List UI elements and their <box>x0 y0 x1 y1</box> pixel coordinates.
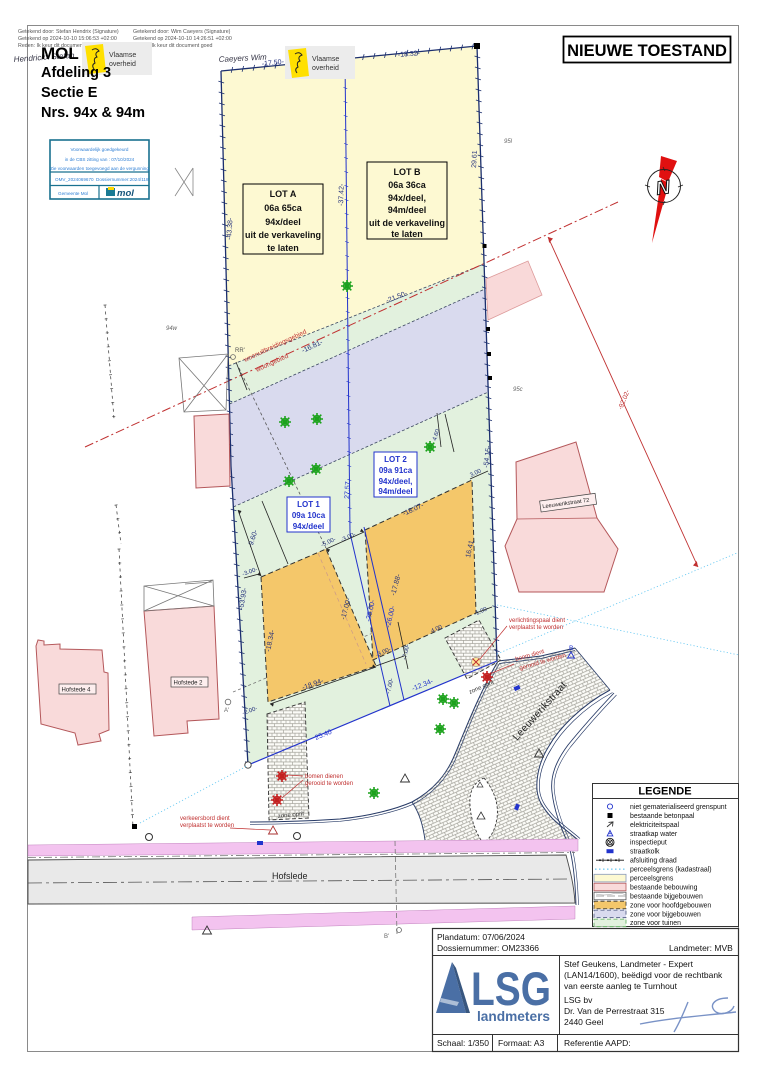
svg-text:mol: mol <box>117 188 134 199</box>
svg-text:LOT A: LOT A <box>270 189 297 199</box>
svg-text:perceelsgrens (kadastraal): perceelsgrens (kadastraal) <box>630 867 712 874</box>
svg-text:A': A' <box>224 708 229 714</box>
svg-text:te laten: te laten <box>267 243 299 253</box>
svg-text:Getekend op 2024-10-10 15:06:5: Getekend op 2024-10-10 15:06:53 +02:00 <box>18 36 117 42</box>
svg-text:MOL: MOL <box>41 44 79 63</box>
svg-text:Gemeente Mol: Gemeente Mol <box>58 191 88 196</box>
svg-text:bestaande bijgebouwen: bestaande bijgebouwen <box>630 893 703 900</box>
svg-text:uit de verkaveling: uit de verkaveling <box>245 230 321 240</box>
svg-text:Schaal: 1/350: Schaal: 1/350 <box>437 1038 489 1048</box>
svg-text:LSG: LSG <box>471 962 551 1015</box>
svg-text:09a 91ca: 09a 91ca <box>379 466 413 475</box>
svg-text:94m/deel: 94m/deel <box>378 487 412 496</box>
svg-text:Sectie E: Sectie E <box>41 85 98 101</box>
svg-text:uit de verkaveling: uit de verkaveling <box>369 218 445 228</box>
svg-text:LSG bv: LSG bv <box>564 995 593 1005</box>
svg-text:06a 65ca: 06a 65ca <box>264 203 303 213</box>
svg-text:LEGENDE: LEGENDE <box>638 786 691 798</box>
svg-text:Landmeter: MVB: Landmeter: MVB <box>669 943 733 953</box>
svg-text:Plandatum: 07/06/2024: Plandatum: 07/06/2024 <box>437 932 525 942</box>
svg-text:95l: 95l <box>504 139 513 145</box>
svg-text:Dossiernummer:2024/118: Dossiernummer:2024/118 <box>96 177 149 182</box>
svg-text:Vlaamse: Vlaamse <box>312 56 339 63</box>
svg-text:te laten: te laten <box>391 229 423 239</box>
svg-text:afsluiting draad: afsluiting draad <box>630 858 677 865</box>
svg-text:zone voor tuinen: zone voor tuinen <box>630 920 681 927</box>
svg-text:94w: 94w <box>166 326 178 332</box>
svg-text:LOT B: LOT B <box>394 167 421 177</box>
svg-text:verlichtingspaal dient: verlichtingspaal dient <box>509 618 565 624</box>
svg-text:B: B <box>569 645 573 652</box>
svg-text:inspectieput: inspectieput <box>630 840 667 847</box>
svg-text:overheid: overheid <box>312 65 339 72</box>
svg-text:OMV_2024069670: OMV_2024069670 <box>55 177 94 182</box>
svg-text:niet gematerialiseerd grenspun: niet gematerialiseerd grenspunt <box>630 804 727 811</box>
svg-text:elektriciteitspaal: elektriciteitspaal <box>630 822 679 829</box>
svg-text:94x/deel: 94x/deel <box>265 217 301 227</box>
svg-text:Nrs. 94x & 94m: Nrs. 94x & 94m <box>41 105 145 121</box>
svg-text:straatkolk: straatkolk <box>630 849 660 856</box>
svg-text:straatkap water: straatkap water <box>630 831 678 838</box>
svg-text:perceelsgrens: perceelsgrens <box>630 876 674 883</box>
svg-text:van eerste aanleg te Turnhout: van eerste aanleg te Turnhout <box>564 981 678 991</box>
svg-text:Dr. Van de Perrestraat 315: Dr. Van de Perrestraat 315 <box>564 1006 665 1016</box>
svg-text:Dossiernummer: OM23366: Dossiernummer: OM23366 <box>437 943 539 953</box>
svg-text:Getekend op 2024-10-10 14:26:5: Getekend op 2024-10-10 14:26:51 +02:00 <box>133 36 232 42</box>
svg-text:Stef Geukens, Landmeter - Expe: Stef Geukens, Landmeter - Expert <box>564 959 694 969</box>
svg-text:2440 Geel: 2440 Geel <box>564 1017 603 1027</box>
svg-text:Hofstede 4: Hofstede 4 <box>62 688 92 694</box>
svg-text:Formaat: A3: Formaat: A3 <box>498 1038 545 1048</box>
svg-text:Hofstede 2: Hofstede 2 <box>174 681 204 687</box>
svg-text:bomen dienen: bomen dienen <box>305 774 343 780</box>
svg-text:27.57: 27.57 <box>344 481 352 499</box>
svg-text:Getekend door: Stefan Hendrix: Getekend door: Stefan Hendrix (Signature… <box>18 29 119 35</box>
svg-text:verplaatst te worden: verplaatst te worden <box>180 823 234 829</box>
svg-text:Getekend door: Wim Caeyers (Si: Getekend door: Wim Caeyers (Signature) <box>133 29 231 35</box>
svg-text:94x/deel,: 94x/deel, <box>379 477 413 486</box>
svg-text:94x/deel: 94x/deel <box>293 522 325 531</box>
svg-text:-37.42-: -37.42- <box>338 183 346 206</box>
svg-text:RR': RR' <box>235 348 245 354</box>
svg-text:verkeersbord dient: verkeersbord dient <box>180 816 230 822</box>
svg-text:Vlaamse: Vlaamse <box>109 52 136 59</box>
svg-text:overheid: overheid <box>109 61 136 68</box>
svg-text:bestaande bebouwing: bestaande bebouwing <box>630 884 698 891</box>
svg-text:94m/deel: 94m/deel <box>388 205 427 215</box>
svg-text:gerooid te worden: gerooid te worden <box>305 781 353 787</box>
svg-text:NIEUWE TOESTAND: NIEUWE TOESTAND <box>567 42 727 60</box>
svg-text:09a 10ca: 09a 10ca <box>292 511 326 520</box>
svg-text:95c: 95c <box>513 387 523 393</box>
svg-text:in de CBS zitting van : 07/10/: in de CBS zitting van : 07/10/2024 <box>65 157 135 162</box>
svg-text:zone voor bijgebouwen: zone voor bijgebouwen <box>630 911 701 918</box>
svg-text:bestaande betonpaal: bestaande betonpaal <box>630 813 695 820</box>
svg-text:LOT 2: LOT 2 <box>384 455 407 464</box>
svg-text:Hofslede: Hofslede <box>272 871 308 881</box>
svg-text:B': B' <box>384 934 389 940</box>
svg-text:94x/deel,: 94x/deel, <box>388 193 426 203</box>
svg-text:landmeters: landmeters <box>477 1009 550 1024</box>
svg-text:zone voor hoofdgebouwen: zone voor hoofdgebouwen <box>630 902 711 909</box>
svg-text:29.61: 29.61 <box>471 150 479 168</box>
svg-text:LOT 1: LOT 1 <box>297 500 320 509</box>
svg-text:Zie voorwaarden toegevoegd aan: Zie voorwaarden toegevoegd aan de vergun… <box>50 166 149 171</box>
svg-text:Afdeling 3: Afdeling 3 <box>41 65 111 81</box>
svg-text:verplaatst te worden: verplaatst te worden <box>509 625 563 631</box>
svg-text:(LAN14/1600), beëdigd voor de: (LAN14/1600), beëdigd voor de rechtbank <box>564 970 723 980</box>
svg-text:Referentie AAPD:: Referentie AAPD: <box>564 1038 631 1048</box>
svg-text:06a 36ca: 06a 36ca <box>388 180 427 190</box>
svg-text:Voorwaardelijk goedgekeurd: Voorwaardelijk goedgekeurd <box>71 147 129 152</box>
